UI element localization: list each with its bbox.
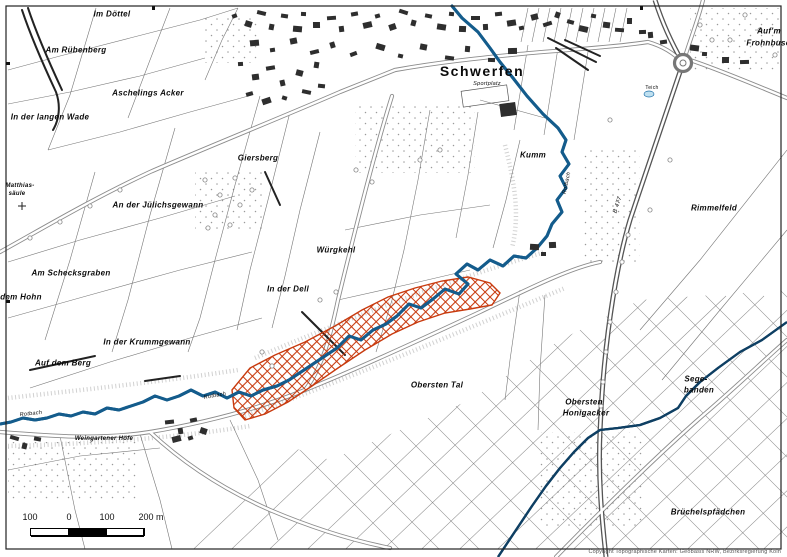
sportplatz-field (461, 85, 509, 107)
scale-tick: 200 m (138, 512, 163, 522)
map-label-an-der-jülichsgewann: An der Jülichsgewann (113, 201, 204, 210)
church-building (499, 102, 517, 117)
map-label-würgkehl: Würgkehl (317, 246, 356, 255)
scale-tick: 100 (99, 512, 114, 522)
map-label-säule: säule (9, 191, 26, 197)
map-label-matthias-: Matthias- (5, 183, 34, 189)
map-canvas (0, 0, 787, 557)
map-label-in-der-langen-wade: In der langen Wade (11, 113, 90, 122)
map-label-honigacker: Honigacker (563, 409, 610, 418)
map-label-brüchelspfädchen: Brüchelspfädchen (671, 508, 746, 517)
map-label-im-döttel: Im Döttel (94, 10, 131, 19)
scale-tick: 0 (66, 512, 71, 522)
red-hatch-area (232, 277, 500, 420)
scale-tick: 100 (22, 512, 37, 522)
copyright-text: Copyright Topographische Karten: Geobasi… (588, 549, 781, 555)
monument-icon (18, 202, 26, 210)
map-label-aschelings-acker: Aschelings Acker (112, 89, 184, 98)
map-label-sege-: Sege- (684, 375, 707, 384)
map-label-obersten-tal: Obersten Tal (411, 381, 463, 390)
scale-bar-segments (30, 528, 145, 536)
map-label-weingartener-höfe: Weingartener Höfe (75, 436, 133, 442)
map-label-in-der-krummgewann: In der Krummgewann (103, 338, 190, 347)
parcel-strips-north (521, 8, 627, 42)
map-label-giersberg: Giersberg (238, 154, 279, 163)
map-label-am-schecksgraben: Am Schecksgraben (31, 269, 110, 278)
map-label-rimmelfeld: Rimmelfeld (691, 204, 737, 213)
map-label-dem-hohn: dem Hohn (0, 293, 42, 302)
map-label-am-rübenberg: Am Rübenberg (46, 46, 107, 55)
map-label-banden: banden (684, 386, 714, 395)
map-label-in-der-dell: In der Dell (267, 285, 309, 294)
pond-icon (644, 91, 654, 97)
map-label-auf-dem-berg: Auf dem Berg (35, 359, 91, 368)
map-label-obersten: Obersten (565, 398, 603, 407)
map-viewport: Im DöttelAm RübenbergAschelings AckerIn … (0, 0, 787, 557)
scale-bar: 1000100200 m (8, 512, 248, 557)
scale-seg-2 (69, 529, 107, 535)
map-label-sportplatz: Sportplatz (473, 81, 501, 87)
map-label-frohnbuschbe: Frohnbuschbe (746, 39, 787, 48)
map-label-auf-m: Auf'm (757, 27, 781, 36)
map-label-kumm: Kumm (520, 151, 546, 160)
map-label-teich: Teich (645, 85, 658, 91)
scale-seg-3 (107, 529, 144, 535)
scale-seg-1 (31, 529, 69, 535)
map-label-schwerfen: Schwerfen (440, 63, 524, 79)
